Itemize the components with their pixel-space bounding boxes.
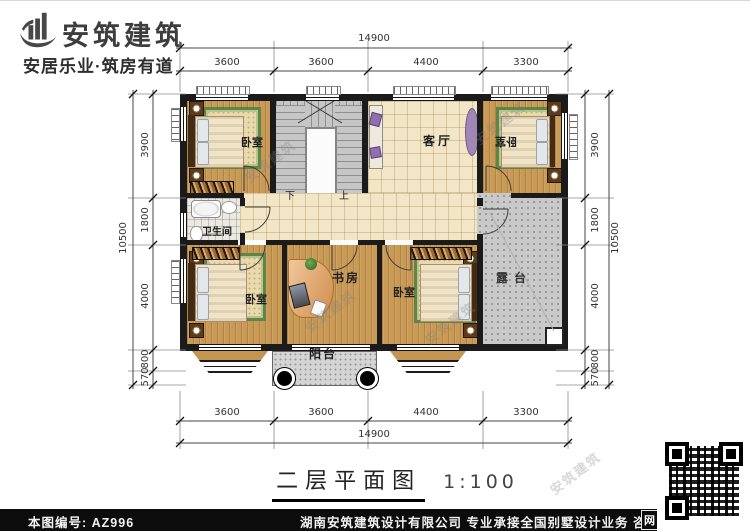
dim-top-seg4: 3300 — [496, 58, 556, 68]
room-label-living: 客厅 — [416, 135, 460, 147]
dim-left-overall: 10500 — [119, 213, 129, 263]
dim-bottom-seg3: 4400 — [396, 408, 456, 418]
dim-right-seg3: 4000 — [591, 276, 601, 316]
dim-left-seg1: 3900 — [141, 125, 151, 165]
room-label-bathroom: 卫生间 — [195, 228, 239, 238]
dim-left-seg2: 1800 — [141, 200, 151, 240]
room-label-bedroom-br: 卧室 — [382, 288, 426, 299]
dim-top-seg2: 3600 — [291, 58, 351, 68]
dim-bottom-seg2: 3600 — [291, 408, 351, 418]
qr-pattern — [665, 442, 743, 520]
room-label-terrace: 露台 — [492, 272, 536, 284]
dim-right-seg2: 1800 — [591, 200, 601, 240]
title-block: 二层平面图 1:100 — [255, 463, 535, 502]
room-label-bedroom-bl: 卧室 — [234, 295, 278, 306]
qr-finder — [665, 496, 689, 520]
room-label-balcony: 阳台 — [301, 348, 345, 360]
drawing-title: 二层平面图 — [272, 463, 425, 502]
stair-down-label: 下 — [278, 192, 302, 202]
qr-code — [657, 433, 750, 531]
dim-bottom-seg1: 3600 — [197, 408, 257, 418]
footer-bar: 本图编号: AZ996 湖南安筑建筑设计有限公司 专业承接全国别墅设计业务 咨询… — [0, 509, 750, 531]
dim-top-seg3: 4400 — [396, 58, 456, 68]
floor-plan-page: 安筑建筑 安居乐业·筑房有道 — [0, 0, 750, 531]
room-label-bedroom-tl: 卧室 — [230, 138, 274, 149]
dim-right-seg1: 3900 — [591, 125, 601, 165]
web-badge: 网 — [641, 510, 658, 530]
room-label-study: 书房 — [324, 272, 368, 284]
drawing-scale: 1:100 — [443, 471, 518, 493]
dim-left-seg5: 570 — [141, 357, 151, 397]
stair-up-label: 上 — [332, 192, 356, 202]
qr-finder — [719, 442, 743, 466]
dim-top-seg1: 3600 — [197, 58, 257, 68]
dim-right-overall: 10500 — [611, 213, 621, 263]
dim-top-overall: 14900 — [344, 34, 404, 44]
qr-finder — [665, 442, 689, 466]
dim-bottom-overall: 14900 — [344, 430, 404, 440]
dim-right-seg5: 570 — [591, 357, 601, 397]
plan-annotations — [0, 1, 750, 531]
plan-code: 本图编号: AZ996 — [28, 512, 134, 531]
dim-left-seg3: 4000 — [141, 276, 151, 316]
dim-bottom-seg4: 3300 — [496, 408, 556, 418]
